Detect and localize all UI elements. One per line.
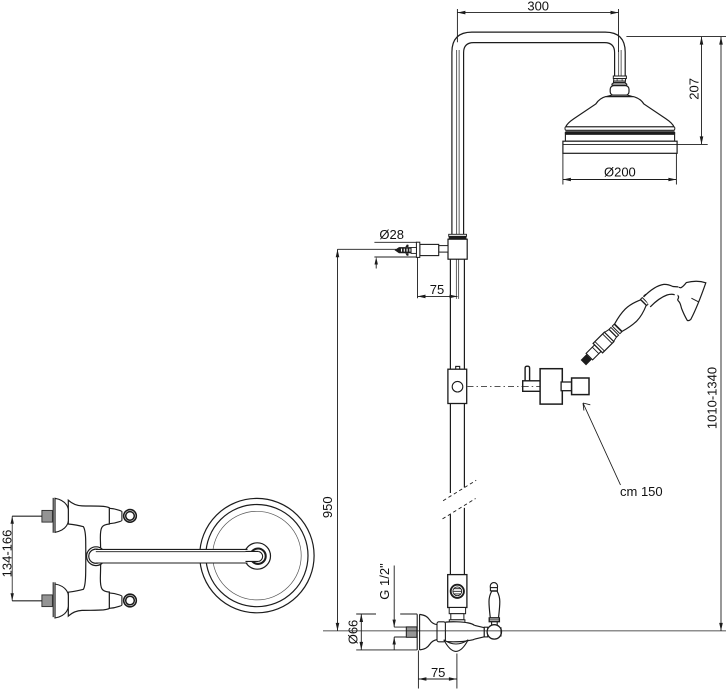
svg-text:950: 950 [320,496,335,518]
svg-text:207: 207 [686,78,701,100]
svg-text:300: 300 [527,0,549,14]
svg-text:1010-1340: 1010-1340 [704,367,719,429]
svg-text:75: 75 [430,282,444,297]
svg-text:cm 150: cm 150 [620,484,663,499]
svg-text:Ø66: Ø66 [346,620,361,645]
svg-text:75: 75 [431,665,445,680]
svg-text:G 1/2": G 1/2" [377,563,392,600]
svg-text:Ø200: Ø200 [604,165,636,180]
svg-text:Ø28: Ø28 [379,227,404,242]
svg-text:134-166: 134-166 [0,530,14,578]
